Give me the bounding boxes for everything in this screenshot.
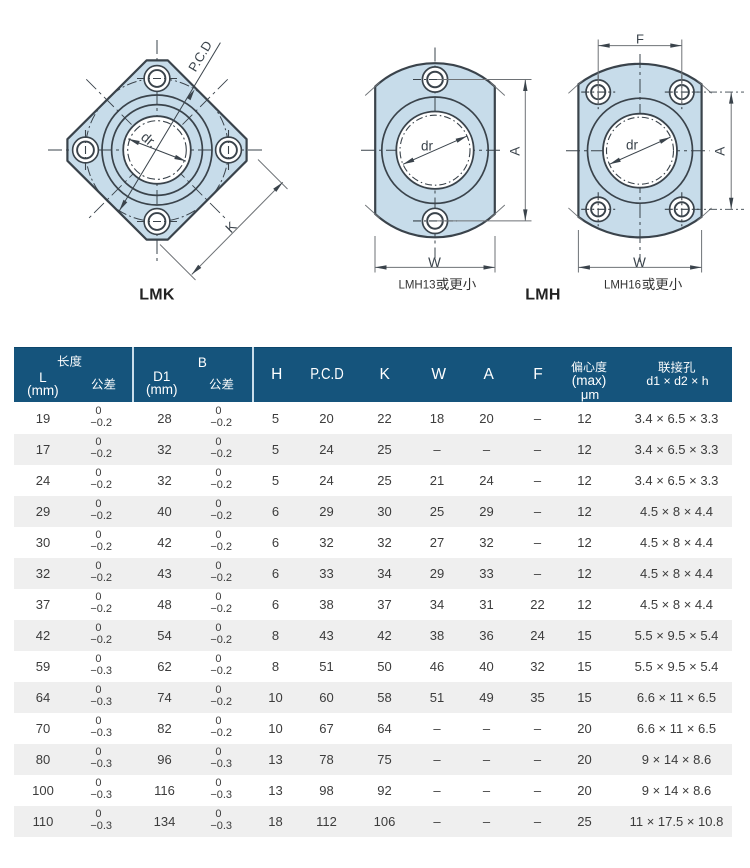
svg-text:P.C.D: P.C.D	[185, 38, 215, 74]
svg-text:dr: dr	[421, 139, 434, 154]
svg-text:F: F	[636, 32, 644, 47]
svg-text:W: W	[633, 255, 646, 270]
svg-text:dr: dr	[626, 138, 639, 153]
svg-text:LMK: LMK	[139, 287, 175, 304]
svg-text:LMH13: LMH13	[398, 280, 435, 292]
svg-text:A: A	[507, 147, 522, 156]
svg-text:LMH: LMH	[525, 287, 561, 304]
svg-text:W: W	[428, 255, 441, 270]
svg-text:A: A	[712, 147, 727, 156]
svg-text:K: K	[222, 219, 239, 236]
svg-text:LMH16: LMH16	[604, 280, 641, 292]
